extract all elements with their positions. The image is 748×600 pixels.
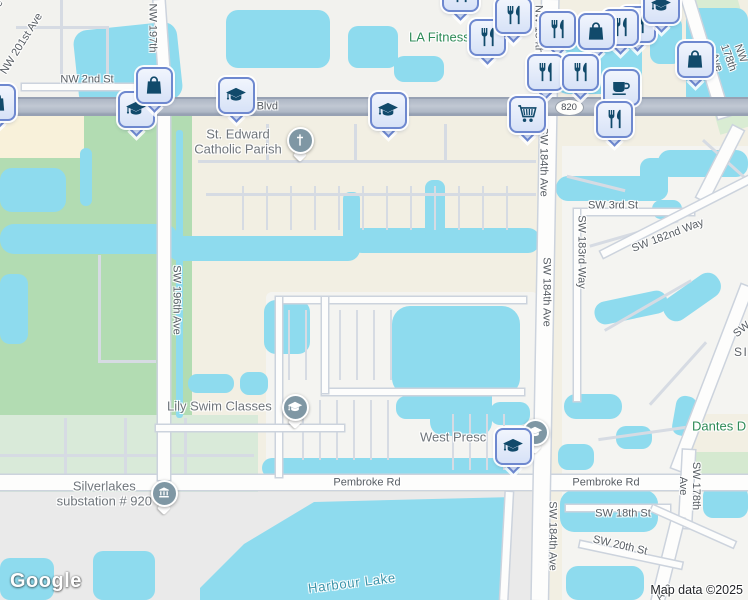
poi-marker-restaurant[interactable] — [596, 101, 633, 138]
water-body — [350, 228, 540, 253]
poi-marker-restaurant[interactable] — [495, 0, 532, 34]
poi-marker-graduation-cap[interactable] — [495, 428, 532, 465]
shopping-cart-icon — [516, 103, 538, 125]
water-body — [80, 148, 92, 206]
lot-line — [458, 186, 460, 230]
graduation-cap-icon — [225, 84, 247, 106]
lot-line — [353, 400, 355, 460]
lane-road — [98, 360, 156, 363]
lot-line — [314, 186, 316, 230]
poi-marker-graduation-cap[interactable] — [370, 92, 407, 129]
lot-line — [482, 186, 484, 230]
water-body — [703, 486, 748, 518]
lane-road — [198, 160, 536, 163]
water-body — [0, 274, 28, 344]
water-body — [658, 150, 748, 177]
water-body — [343, 192, 360, 242]
lot-line — [266, 186, 268, 230]
route-820-shield: 820 — [555, 99, 584, 116]
lot-line — [370, 400, 372, 460]
restaurant-icon — [534, 61, 556, 83]
street-label: SW 184th Ave — [546, 501, 559, 571]
map-attribution: Map data ©2025 — [650, 583, 743, 597]
lot-line — [242, 186, 244, 230]
lot-line — [506, 186, 508, 230]
lot-line — [356, 310, 358, 380]
water-body — [348, 26, 398, 68]
coffee-cup-icon — [610, 76, 632, 98]
church-icon — [292, 132, 308, 148]
shopping-bag-icon — [0, 91, 8, 113]
street-label: SW 178th Ave — [676, 457, 702, 516]
water-body — [566, 566, 644, 600]
poi-marker-restaurant[interactable] — [562, 54, 599, 91]
street-label: SW 184th Ave — [540, 257, 553, 327]
water-body — [396, 396, 444, 419]
water-body — [0, 168, 66, 212]
lot-line — [434, 186, 436, 230]
lot-line — [386, 186, 388, 230]
map-label: Silverlakes substation # 920 — [57, 479, 152, 510]
lot-line — [362, 186, 364, 230]
map-label: LA Fitness — [409, 29, 470, 44]
map-label: Dantes D — [692, 418, 746, 433]
st-edward-pin[interactable] — [287, 127, 314, 154]
lot-line — [390, 310, 392, 380]
map-label: SIL — [734, 345, 748, 359]
street-label: SW 183rd Way — [575, 215, 588, 289]
poi-marker-shopping-bag[interactable] — [0, 84, 16, 121]
graduation-cap-icon — [502, 435, 524, 457]
lot-line — [290, 186, 292, 230]
poi-marker-shopping-bag[interactable] — [578, 13, 615, 50]
lane-road — [0, 454, 254, 457]
restaurant-icon — [502, 4, 524, 26]
water-body — [188, 374, 234, 393]
restaurant-icon — [569, 61, 591, 83]
poi-marker-shopping-bag[interactable] — [136, 67, 173, 104]
government-icon — [156, 485, 172, 501]
shopping-bag-icon — [143, 74, 165, 96]
lot-line — [387, 400, 389, 460]
map-label: Lily Swim Classes — [167, 398, 272, 413]
water-body — [558, 444, 594, 470]
poi-marker-restaurant[interactable] — [527, 54, 564, 91]
lot-line — [338, 186, 340, 230]
main-road — [322, 297, 328, 393]
street-label: NW 197th — [146, 4, 159, 53]
poi-marker-restaurant[interactable] — [442, 0, 479, 12]
lot-line — [339, 310, 341, 380]
lane-road — [354, 124, 357, 162]
street-label: SW 18th St — [595, 508, 651, 521]
main-road — [156, 425, 344, 431]
water-body — [0, 224, 178, 254]
shopping-bag-icon — [684, 48, 706, 70]
street-label: Pembroke Rd — [333, 477, 400, 490]
street-label: Pembroke Rd — [572, 477, 639, 490]
street-label: NW 2nd St — [60, 74, 113, 87]
graduation-cap-icon — [377, 99, 399, 121]
restaurant-icon — [449, 0, 471, 4]
water-body — [264, 300, 310, 354]
water-body — [394, 56, 444, 82]
lot-line — [486, 414, 488, 470]
lot-line — [373, 310, 375, 380]
street-label: SW 3rd St — [588, 200, 638, 213]
water-body — [168, 236, 360, 261]
street-label: SW 196th Ave — [170, 265, 183, 335]
restaurant-icon — [546, 18, 568, 40]
main-road — [276, 297, 526, 303]
main-road — [322, 389, 524, 395]
map-canvas[interactable]: Google Map data ©2025 820NW 201st AveAve… — [0, 0, 748, 600]
map-label: St. Edward Catholic Parish — [194, 127, 281, 158]
google-logo[interactable]: Google — [10, 570, 82, 593]
silverlakes-substation-pin[interactable] — [151, 480, 178, 507]
water-body — [564, 394, 622, 419]
lane-road — [206, 193, 536, 196]
lane-road — [444, 124, 447, 162]
lot-line — [305, 310, 307, 380]
map-label: West Presc — [420, 429, 486, 444]
lot-line — [410, 186, 412, 230]
main-road — [276, 297, 282, 477]
poi-marker-shopping-cart[interactable] — [509, 96, 546, 133]
water-body — [226, 10, 330, 68]
water-body — [240, 372, 268, 395]
lily-swim-pin[interactable] — [282, 394, 309, 421]
poi-marker-graduation-cap[interactable] — [218, 77, 255, 114]
restaurant-icon — [603, 108, 625, 130]
poi-marker-restaurant[interactable] — [539, 11, 576, 48]
poi-marker-shopping-bag[interactable] — [677, 41, 714, 78]
shopping-bag-icon — [585, 20, 607, 42]
lot-line — [288, 310, 290, 380]
lane-road — [98, 255, 101, 363]
graduation-cap-icon — [287, 399, 303, 415]
graduation-cap-icon — [650, 0, 672, 16]
poi-marker-graduation-cap[interactable] — [643, 0, 680, 24]
street-label: SW 184th Ave — [537, 127, 550, 197]
water-body — [93, 551, 155, 600]
